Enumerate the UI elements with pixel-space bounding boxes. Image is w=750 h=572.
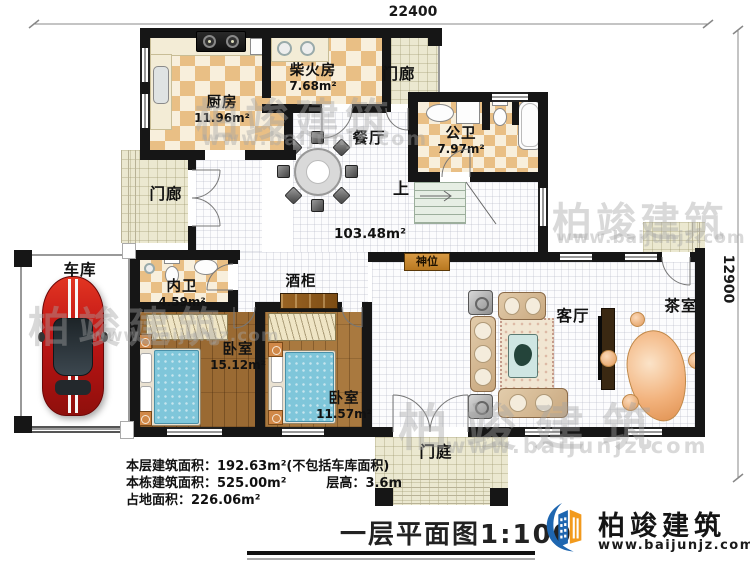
- wall-segment: [592, 252, 625, 262]
- hall-area-label: 103.48m²: [332, 227, 408, 242]
- nightstand: [268, 410, 283, 425]
- wall-segment: [222, 427, 282, 437]
- shower-head: [144, 263, 155, 274]
- bathroom-sink: [194, 259, 218, 275]
- bed-blanket: [154, 350, 199, 424]
- wall-segment: [482, 95, 490, 130]
- firewood-stove-burner: [277, 41, 292, 56]
- building-info: 本层建筑面积：192.63m²(不包括车库面积) 本栋建筑面积：525.00m²…: [126, 458, 402, 509]
- column-block: [14, 250, 32, 267]
- staircase: [414, 182, 466, 224]
- title-rule-thin: [247, 558, 535, 560]
- kitchen-sink: [153, 66, 169, 104]
- dimension-right: 12900: [720, 249, 736, 309]
- room-label-west-porch: 门廊: [146, 186, 186, 203]
- wall-segment: [262, 38, 271, 98]
- wall-segment: [188, 226, 196, 252]
- junction-box: [122, 243, 136, 259]
- window: [167, 427, 222, 437]
- window: [282, 427, 324, 437]
- room-label-dining: 餐厅: [350, 130, 388, 147]
- dining-chair: [345, 165, 358, 178]
- wall-segment: [695, 248, 705, 437]
- stairs-up-label: 上: [390, 180, 412, 198]
- dimension-top: 22400: [380, 4, 446, 20]
- window: [140, 48, 150, 82]
- gas-stove: [196, 31, 246, 52]
- toilet-bowl: [493, 108, 507, 126]
- pillow: [271, 355, 283, 383]
- car: [42, 276, 104, 416]
- plan-title: 一层平面图1:100: [340, 514, 573, 551]
- wine-cabinet-label: 酒柜: [278, 275, 324, 291]
- entry-court-steps: [393, 474, 490, 504]
- junction-box: [120, 421, 134, 439]
- bathroom-sink: [426, 104, 454, 122]
- wall-segment: [538, 92, 548, 188]
- sofa-top: [498, 292, 546, 320]
- nightstand: [268, 342, 283, 357]
- wall-segment: [352, 104, 386, 113]
- room-label-private-bath: 内卫 4.59m²: [158, 280, 206, 309]
- pillow: [140, 353, 152, 383]
- window: [140, 94, 150, 128]
- window: [560, 252, 592, 262]
- room-label-public-bath: 公卫 7.97m²: [436, 127, 486, 156]
- column-block: [428, 28, 442, 46]
- hall-floor-west: [196, 160, 262, 252]
- sofa-chaise: [498, 388, 568, 418]
- dining-chair: [311, 199, 324, 212]
- room-label-bedroom2: 卧室 11.57m²: [314, 392, 374, 421]
- room-label-entry: 门庭: [414, 444, 458, 461]
- dining-table-center: [306, 160, 330, 184]
- window: [538, 188, 548, 226]
- floor-plan-canvas: 神位 厨房 11.96m² 柴火房 7.68m² 门廊 门廊 餐厅 公卫 7.9…: [0, 0, 750, 572]
- wine-cabinet: [280, 293, 338, 309]
- wardrobe: [268, 313, 336, 341]
- wall-segment: [140, 28, 150, 48]
- brand-logo-icon: [542, 498, 590, 554]
- info-line-land-area: 占地面积：226.06m²: [126, 492, 402, 509]
- info-line-floor-area: 本层建筑面积：192.63m²(不包括车库面积): [126, 458, 402, 475]
- sofa-back: [470, 316, 496, 392]
- tv-screen: [598, 316, 602, 380]
- dining-chair: [277, 165, 290, 178]
- tea-stool: [630, 312, 645, 327]
- shrine-shelf: 神位: [404, 253, 450, 271]
- tv-cabinet: [601, 308, 615, 390]
- room-label-living: 客厅: [552, 308, 594, 325]
- dining-chair: [311, 131, 324, 144]
- column-block: [490, 488, 508, 506]
- wall-segment: [262, 104, 322, 113]
- window: [492, 92, 528, 102]
- stove-burner: [226, 35, 239, 48]
- wall-segment: [470, 172, 548, 182]
- garage-door: [26, 426, 122, 433]
- wall-segment: [140, 82, 150, 94]
- stove-burner: [203, 35, 216, 48]
- west-porch-steps: [121, 150, 141, 243]
- wall-segment: [324, 427, 393, 437]
- wall-segment: [657, 252, 662, 262]
- room-label-tea: 茶室: [660, 298, 702, 315]
- washing-machine: [456, 100, 480, 124]
- end-table: [468, 394, 493, 419]
- wall-segment: [662, 427, 705, 437]
- wall-segment: [368, 252, 548, 262]
- room-label-bedroom1: 卧室 15.12m²: [208, 343, 268, 372]
- wall-segment: [408, 92, 418, 182]
- wall-segment: [130, 427, 168, 437]
- wall-segment: [228, 250, 238, 264]
- room-label-garage: 车库: [56, 262, 104, 279]
- window: [625, 252, 657, 262]
- window: [525, 427, 560, 437]
- column-block: [14, 416, 32, 433]
- wall-segment: [408, 92, 492, 102]
- wall-segment: [408, 172, 440, 182]
- tea-stool: [622, 394, 639, 411]
- wall-segment: [560, 427, 628, 437]
- room-label-top-porch: 门廊: [381, 66, 417, 83]
- window: [628, 427, 662, 437]
- wall-segment: [140, 28, 442, 38]
- end-table: [468, 290, 493, 315]
- wardrobe: [146, 314, 228, 340]
- wall-segment: [130, 250, 140, 437]
- info-line-building-area: 本栋建筑面积：525.00m²层高：3.6m: [126, 475, 402, 492]
- room-label-kitchen: 厨房 11.96m²: [190, 96, 254, 125]
- wall-segment: [548, 252, 560, 262]
- brand-url: www.baijunjz.com: [598, 538, 750, 553]
- wall-segment: [188, 150, 196, 170]
- bathtub-inner: [521, 103, 539, 147]
- firewood-stove-burner: [300, 41, 315, 56]
- tea-stool: [600, 350, 617, 367]
- room-label-firewood: 柴火房 7.68m²: [280, 64, 346, 93]
- wall-segment: [130, 250, 240, 260]
- wall-segment: [468, 427, 525, 437]
- title-rule-thick: [247, 551, 535, 555]
